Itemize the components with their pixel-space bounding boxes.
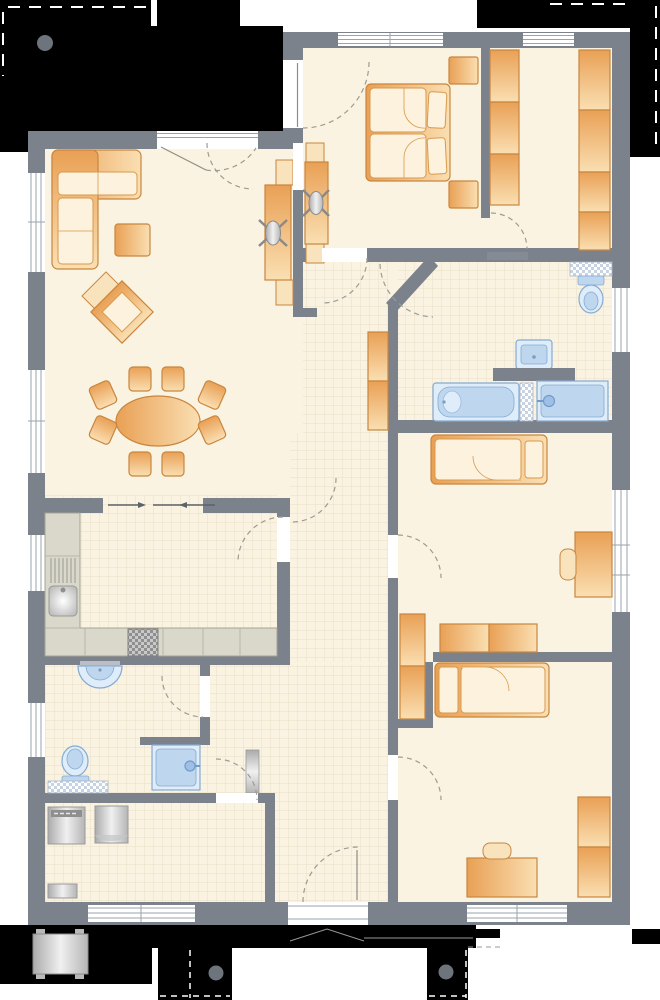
- dish-drainer: [51, 558, 75, 583]
- wall-children-left: [388, 433, 398, 902]
- mask-top-left-3: [240, 26, 283, 131]
- kitchen-sink: [49, 586, 77, 616]
- wall-bath-left: [388, 303, 398, 433]
- wall-sliding-right: [203, 498, 290, 513]
- wall-step-horizontal: [388, 719, 433, 728]
- window-bathroom-right: [612, 288, 630, 352]
- mask-top-left-2: [157, 0, 240, 131]
- washbasin: [516, 340, 552, 369]
- window-guestbath-left: [28, 703, 45, 757]
- window-dressing-top: [523, 33, 574, 46]
- chair: [560, 549, 576, 580]
- window-child1-right: [612, 490, 630, 612]
- radiator: [246, 750, 259, 793]
- wall-child1-child2: [433, 652, 630, 662]
- wardrobe-column: [400, 614, 425, 719]
- tree-dot: [37, 35, 53, 51]
- wall-utility-right: [265, 803, 275, 902]
- door-opening-bedroom: [283, 60, 303, 128]
- floor-plan-page: [0, 0, 660, 1000]
- dining-chair: [129, 452, 151, 476]
- wall-tiles: [520, 383, 533, 421]
- wardrobe-right: [579, 50, 610, 250]
- stove: [128, 629, 158, 656]
- wall-shower-nook: [140, 737, 210, 745]
- single-bed: [431, 435, 547, 484]
- wall-dressing-divider: [481, 48, 490, 218]
- dining-chair: [162, 452, 184, 476]
- door-opening-child2: [388, 755, 398, 800]
- door-opening-guestbath: [200, 676, 210, 717]
- hall-mid-tile-floor: [290, 433, 388, 662]
- door-opening-child1: [388, 535, 398, 578]
- mask-left-edge: [0, 131, 28, 152]
- wall-kitchen-bottom: [45, 656, 277, 665]
- nightstand: [449, 181, 478, 208]
- doormat-bench: [33, 929, 88, 979]
- shower: [152, 745, 200, 790]
- nightstand: [449, 57, 478, 84]
- wall-bath-bottom: [388, 420, 630, 433]
- door-opening-living: [293, 143, 303, 190]
- toilet: [62, 746, 89, 785]
- mask-top-left-fill: [151, 26, 157, 131]
- chair: [483, 843, 511, 859]
- wardrobe: [578, 797, 610, 897]
- wardrobe-left: [490, 50, 519, 205]
- window-child2-bottom: [467, 905, 567, 922]
- dining-table: [116, 396, 200, 446]
- dining-chair: [129, 367, 151, 391]
- toilet: [578, 276, 604, 313]
- hall-closet: [368, 332, 388, 430]
- floor-plan-drawing: [0, 0, 660, 1000]
- planter-dot: [439, 965, 454, 980]
- door-opening-bedroom-hall: [322, 248, 367, 262]
- entrance-door-opening: [288, 902, 368, 925]
- dining-chair: [162, 367, 184, 391]
- bathtub: [433, 383, 519, 421]
- mask-top-left: [0, 0, 151, 131]
- wall-sliding-left: [45, 498, 103, 513]
- planter-dot: [209, 966, 224, 981]
- wall-right: [612, 48, 630, 902]
- window-kitchen-left: [28, 535, 45, 591]
- window-utility-bottom: [88, 905, 195, 922]
- coffee-table: [115, 224, 150, 256]
- kitchen-counter-bottom: [45, 628, 277, 656]
- wall-tiles: [48, 781, 108, 793]
- wardrobe-row: [440, 624, 537, 652]
- window-dining-left: [28, 370, 45, 473]
- mask-bottom-right-bit: [632, 929, 660, 944]
- wall-top-bedroom: [283, 32, 630, 48]
- window-living-left: [28, 173, 45, 272]
- wall-niche-shelf: [487, 252, 528, 260]
- door-opening-kitchen: [277, 517, 290, 562]
- double-bed: [366, 84, 450, 181]
- mask-bottom-bit: [473, 929, 500, 938]
- utility-shelf: [48, 884, 77, 898]
- door-opening-utility: [216, 793, 258, 803]
- wall-step-vertical: [425, 662, 433, 728]
- wall-tiles: [570, 262, 612, 276]
- single-bed: [435, 663, 549, 717]
- wall-shower-divider: [493, 368, 575, 381]
- wall-divider-stub: [293, 308, 317, 317]
- window-bedroom-top: [338, 33, 443, 46]
- shower: [537, 381, 608, 421]
- washing-machine: [48, 807, 85, 844]
- dryer: [95, 806, 128, 843]
